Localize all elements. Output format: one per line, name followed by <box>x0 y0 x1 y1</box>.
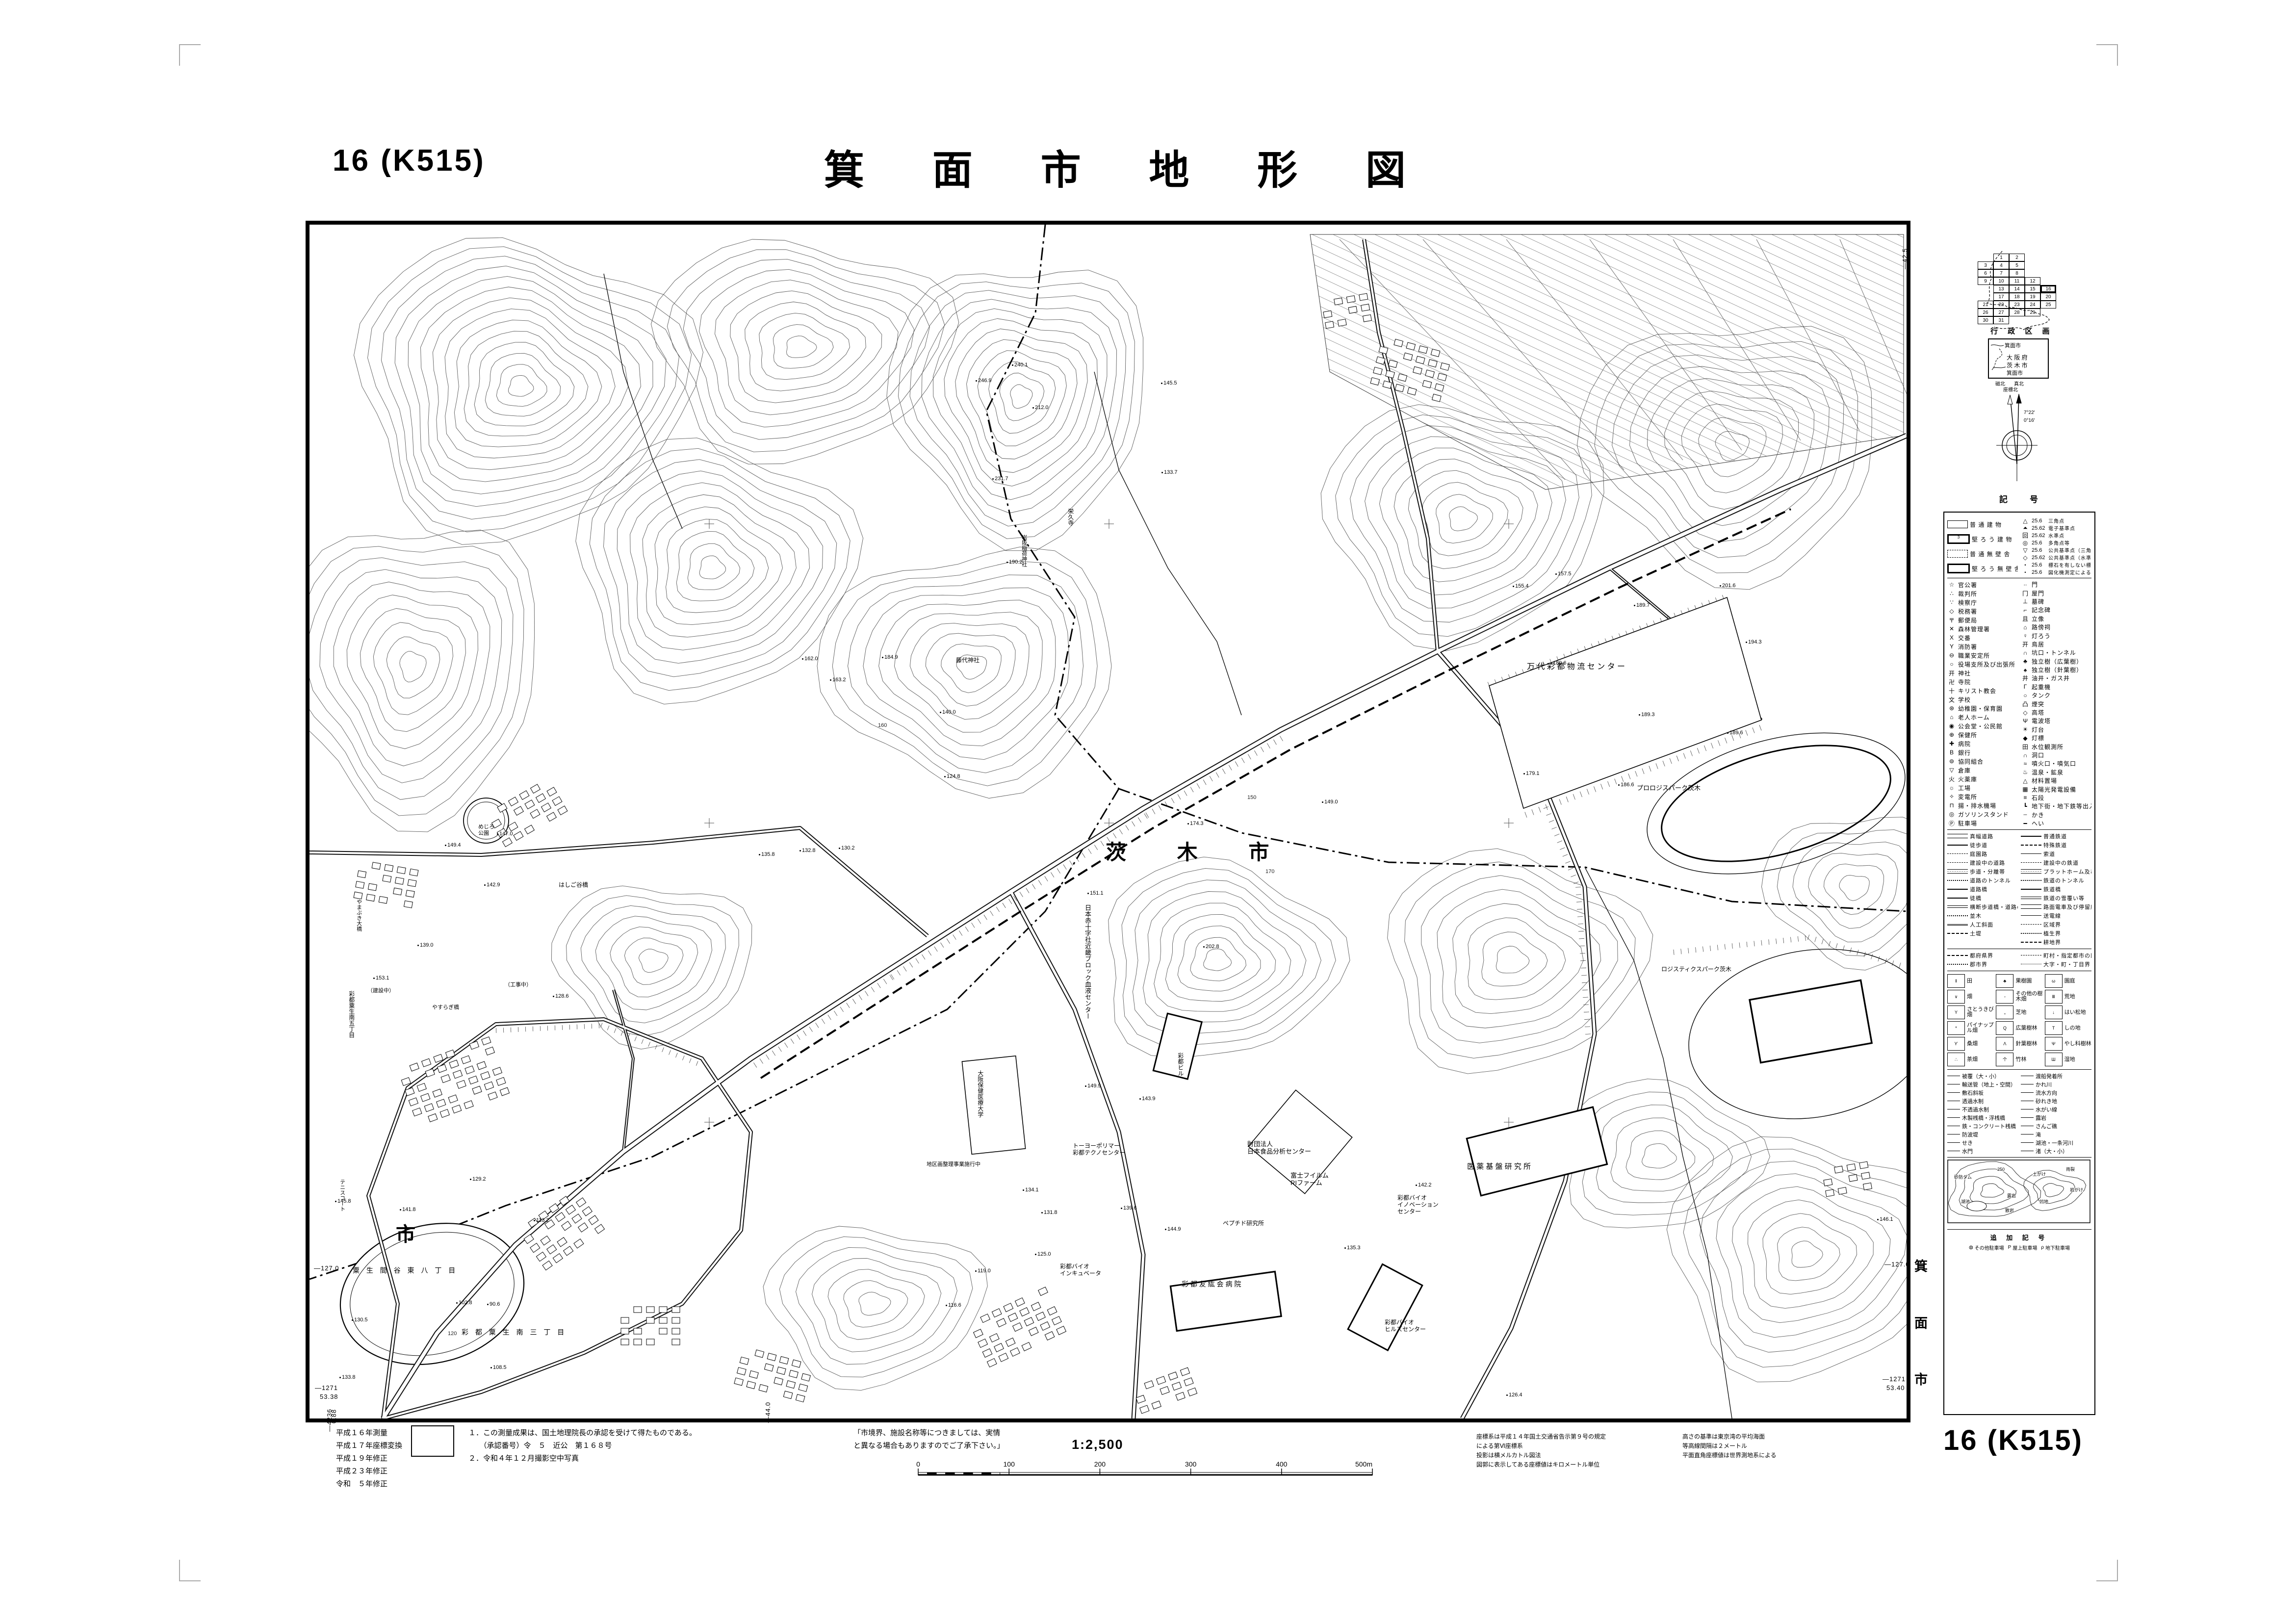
legend-water-row: 渡船発着所 <box>2021 1072 2091 1080</box>
legend-rail-row: 特殊鉄道 <box>2021 841 2091 850</box>
legend-road-row: 建設中の道路 <box>1947 858 2018 867</box>
legend-water-row: 水がい線 <box>2021 1105 2091 1113</box>
spot-elevation: 139.6 <box>1121 1205 1137 1211</box>
legend-water-row: 防波堤 <box>1947 1130 2018 1138</box>
legend-water-row: さんご礁 <box>2021 1122 2091 1130</box>
legend-road-row: 庭園路 <box>1947 850 2018 858</box>
vegetation-symbol: Ψ <box>2045 1037 2063 1051</box>
vegetation-symbol: 个 <box>1996 1053 2013 1066</box>
legend-rail-row: 鉄道のトンネル <box>2021 876 2091 885</box>
control-point-icon: ・ <box>2021 568 2030 576</box>
scale-tick-label: 200 <box>1094 1460 1106 1468</box>
place-label: 栄久寺 <box>1067 508 1074 526</box>
vegetation-symbol: * <box>1947 1021 1965 1035</box>
facility-icon: ⌐ <box>2021 607 2030 614</box>
spot-elevation: 149.4 <box>445 842 461 848</box>
terrain-sample-label: 250 <box>1997 1167 2005 1172</box>
legend-facility-row: ⊖職業安定所 <box>1947 651 2018 660</box>
index-cell-28: 28 <box>2009 309 2025 316</box>
spot-elevation: 184.9 <box>882 654 898 660</box>
water-line-icon <box>1947 1134 1960 1134</box>
line-symbol <box>2021 834 2041 839</box>
legend-additional: 追 加 記 号◍その他駐車場P屋上駐車場ρ地下駐車場 <box>1947 1230 2091 1253</box>
water-line-icon <box>2021 1134 2034 1134</box>
place-label: （工事中） <box>505 982 532 988</box>
spot-elevation: 145.8 <box>335 1198 351 1204</box>
place-label: （建設中） <box>367 988 394 994</box>
facility-icon: △ <box>2021 777 2030 784</box>
legend-water: 被覆（大・小）輸送管（地上・空間）敷石斜坂透過水制不透過水制木製桟橋・浮桟橋鉄・… <box>1947 1070 2091 1158</box>
spot-elevation: 133.8 <box>339 1374 356 1380</box>
facility-icon: ⌂ <box>2021 624 2030 631</box>
terrain-sample-label: 凹地 <box>2039 1200 2048 1204</box>
place-label: プロロジスパーク茨木 <box>1637 785 1701 792</box>
line-symbol <box>2021 887 2041 892</box>
terrain-sample-label: 土がけ <box>2033 1172 2046 1177</box>
edge-coordinate: —1271 <box>315 1384 338 1392</box>
water-line-icon <box>1947 1142 1960 1143</box>
vegetation-symbol: ∨ <box>1947 990 1965 1004</box>
spot-elevation: 202.8 <box>1203 944 1219 950</box>
additional-item: ◍その他駐車場 <box>1969 1244 2004 1251</box>
index-cell-8: 8 <box>2009 269 2025 277</box>
legend-water-row: 砂れき地 <box>2021 1097 2091 1105</box>
legend-facility-row: ◉公会堂・公民館 <box>1947 722 2018 730</box>
spot-elevation: 135.8 <box>759 851 775 857</box>
facility-icon: ≡ <box>2021 794 2030 801</box>
legend-vegetation-cell: Λ針葉樹林 <box>1996 1036 2042 1052</box>
grid-angle: 0°16′ <box>2024 418 2035 423</box>
water-line-icon <box>1947 1117 1960 1118</box>
vegetation-symbol: Ш <box>2045 1053 2063 1066</box>
legend-vegetation-cell: ↓はい松地 <box>2045 1005 2091 1020</box>
scale-label: 1:2,500 <box>1072 1437 1124 1452</box>
index-cell-23: 23 <box>2009 301 2025 309</box>
facility-icon: ∩ <box>2021 752 2030 759</box>
place-label: 大阪保健医療大学 <box>977 1070 983 1117</box>
index-cell-7: 7 <box>1993 269 2009 277</box>
spot-elevation: 179.1 <box>1523 771 1540 776</box>
place-label: 粟 生 間 谷 東 八 丁 目 <box>353 1266 458 1274</box>
crop-mark-br <box>2096 1560 2118 1581</box>
legend-boundary-row: 都府県界 <box>1947 951 2018 960</box>
water-line-icon <box>1947 1151 1960 1151</box>
contour-label: 120 <box>448 1331 457 1337</box>
facility-icon: 凸 <box>2021 700 2030 708</box>
facility-icon: Y <box>1947 643 1956 650</box>
additional-row: ◍その他駐車場P屋上駐車場ρ地下駐車場 <box>1947 1244 2091 1251</box>
datum-note-line: 平面直角座標値は世界測地系による <box>1682 1451 1777 1460</box>
facility-icon: ♠ <box>2021 667 2030 673</box>
legend: 普 通 建 物3堅 ろ う 建 物普 通 無 壁 舎堅 ろ う 無 壁 舎△25… <box>1943 512 2095 1415</box>
index-cell-31: 31 <box>1993 316 2009 324</box>
legend-water-row: かれ川 <box>2021 1080 2091 1088</box>
facility-icon: ⊚ <box>1947 758 1956 765</box>
facility-icon: ⊕ <box>1947 731 1956 738</box>
line-symbol <box>1947 904 1968 909</box>
facility-icon: ⊖ <box>1947 652 1956 659</box>
legend-facility-row: 开神社 <box>1947 669 2018 677</box>
legend-facility-row: 冂屋門 <box>2021 589 2091 597</box>
spot-elevation: 157.5 <box>1555 571 1572 577</box>
admin-title: 行 政 区 画 <box>1990 326 2054 336</box>
place-label: 市 <box>396 1223 415 1246</box>
legend-control-point-row: ◎25.6多角点等 <box>2021 539 2091 546</box>
scale-tick-label: 100 <box>1004 1460 1015 1468</box>
legend-rail-row: 送電線 <box>2021 911 2091 920</box>
water-line-icon <box>1947 1076 1960 1076</box>
vegetation-symbol: T <box>2045 1021 2063 1035</box>
vegetation-symbol: ◦ <box>1996 990 2013 1004</box>
edge-coordinate: —127.0 <box>314 1264 339 1272</box>
place-label: 彩都粟生南五丁目 <box>348 991 355 1038</box>
legend-vegetation-cell: Ⅲ荒地 <box>2045 989 2091 1005</box>
spot-elevation: 189.3 <box>1639 712 1655 718</box>
legend-vegetation-cell: Tしの地 <box>2045 1020 2091 1036</box>
legend-facility-row: Y消防署 <box>1947 642 2018 651</box>
legend-facility-row: ▽倉庫 <box>1947 766 2018 774</box>
index-cell-22: 22 <box>1993 301 2009 309</box>
legend-facility-row: Γ起重機 <box>2021 683 2091 691</box>
legend-control-point-row: ⏶25.62電子基準点 <box>2021 524 2091 532</box>
line-symbol <box>2021 931 2041 936</box>
water-line-icon <box>2021 1084 2034 1084</box>
terrain-sample-label: 露岩 <box>2007 1194 2016 1198</box>
legend-facility-row: 卍寺院 <box>1947 677 2018 686</box>
facility-icon: 开 <box>1947 669 1956 677</box>
vegetation-symbol: ω <box>2045 974 2063 988</box>
terrain-sample-label: 湖池 <box>1961 1200 1970 1204</box>
index-cell-30: 30 <box>1978 316 1993 324</box>
legend-road-row: 真幅道路 <box>1947 832 2018 841</box>
spot-elevation: 116.6 <box>946 1302 961 1308</box>
facility-icon: ∴ <box>1947 590 1956 597</box>
legend-vegetation-cell: 个竹林 <box>1996 1052 2042 1067</box>
spot-elevation: 134.1 <box>1023 1187 1039 1193</box>
legend-rail-row: 耕地界 <box>2021 938 2091 947</box>
vegetation-symbol: ↓ <box>2045 1005 2063 1019</box>
legend-facility-row: ✧変電所 <box>1947 792 2018 801</box>
spot-elevation: 131.8 <box>1041 1210 1058 1215</box>
spot-elevation: 130.5 <box>352 1317 368 1323</box>
facility-icon: ○ <box>2021 692 2030 699</box>
index-cell-25: 25 <box>2040 301 2056 309</box>
legend-vegetation-cell: ω園庭 <box>2045 973 2091 989</box>
spot-elevation: 147.0 <box>497 831 513 837</box>
legend-facility-row: ☼工場 <box>1947 783 2018 792</box>
index-cell-6: 6 <box>1978 269 1993 277</box>
line-symbol <box>2021 843 2041 848</box>
facility-icon: ✕ <box>1947 625 1956 632</box>
spot-elevation: 102.8 <box>456 1300 472 1306</box>
legend-water-row: 輸送管（地上・空間） <box>1947 1080 2018 1088</box>
legend-facility-row: ○タンク <box>2021 691 2091 699</box>
legend-rail-row: 鉄道の雪覆い等 <box>2021 894 2091 902</box>
legend-facility-row: Ⓟ駐車場 <box>1947 819 2018 827</box>
legend-boundary-row: 郡市界 <box>1947 960 2018 969</box>
place-label: 彩都バイオヒルズセンター <box>1385 1319 1426 1333</box>
line-symbol <box>2021 962 2041 967</box>
legend-water-row: 木製桟橋・浮桟橋 <box>1947 1113 2018 1122</box>
legend-rail-row: 区域界 <box>2021 920 2091 929</box>
legend-road-row: 道路橋 <box>1947 885 2018 894</box>
control-point-icon: ・ <box>2021 561 2030 568</box>
facility-icon: ┄ <box>2021 811 2030 818</box>
facility-icon: ⊓ <box>1947 802 1956 809</box>
legend-building-row: 普 通 無 壁 舎 <box>1947 546 2018 561</box>
spot-elevation: 124.8 <box>944 773 960 779</box>
approval-note-line: ２．令和４年１２月撮影空中写真 <box>468 1453 579 1463</box>
legend-control-point-row: ・25.6図化機測定による標高点 <box>2021 568 2091 576</box>
side-city-char: 市 <box>1914 1369 1928 1388</box>
index-cell-20: 20 <box>2040 293 2056 301</box>
legend-facility-row: B銀行 <box>1947 748 2018 757</box>
scale-tick-label: 500m <box>1355 1460 1372 1468</box>
legend-water-row: 敷石斜坂 <box>1947 1088 2018 1097</box>
index-cell-17: 17 <box>1993 293 2009 301</box>
legend-facility-row: ◎ガソリンスタンド <box>1947 810 2018 819</box>
line-symbol <box>1947 913 1968 918</box>
scanned-map-sheet: { "page":{ "sheet_number":"16 (K515)", "… <box>0 0 2296 1624</box>
legend-facility-row: 〒郵便局 <box>1947 616 2018 624</box>
legend-facility-row: ◆灯標 <box>2021 734 2091 742</box>
legend-facility-row: ∴裁判所 <box>1947 589 2018 598</box>
legend-facility-row: ◇高塔 <box>2021 708 2091 717</box>
legend-vegetation-cell: Ш湿地 <box>2045 1052 2091 1067</box>
facility-icon: 十 <box>1947 687 1956 695</box>
legend-vegetation-cell: Ψやし科樹林 <box>2045 1036 2091 1052</box>
legend-facility-row: ∩洞口 <box>2021 751 2091 759</box>
facility-icon: Γ <box>2021 683 2030 690</box>
facility-icon: ☆ <box>1947 581 1956 588</box>
legend-water-row: 不透過水制 <box>1947 1105 2018 1113</box>
place-label: 彩都バイオインキュベータ <box>1060 1263 1101 1277</box>
building-symbol <box>1947 564 1970 573</box>
legend-building-row: 普 通 建 物 <box>1947 517 2018 532</box>
legend-rail-row: 路面電車及び停留所 <box>2021 902 2091 911</box>
legend-facility-row: ∙∙門 <box>2021 580 2091 589</box>
place-label: やまぶき大橋 <box>356 899 362 931</box>
spot-elevation: 194.3 <box>1746 639 1762 645</box>
facility-icon: ⌂ <box>1947 714 1956 721</box>
crop-mark-tl <box>179 44 201 66</box>
parking-icon: ◍ <box>1969 1245 1973 1250</box>
admin-pref: 大 阪 府 <box>2007 353 2028 361</box>
facility-icon: ≈ <box>2021 760 2030 767</box>
spot-elevation: 151.1 <box>1087 890 1104 896</box>
coordinate-note-line: による第Ⅵ座標系 <box>1476 1442 1523 1451</box>
legend-rail-row: 索道 <box>2021 850 2091 858</box>
crop-mark-bl <box>179 1560 201 1581</box>
control-point-icon: ◇ <box>2021 554 2030 561</box>
legend-road-row: 徒橋 <box>1947 894 2018 902</box>
terrain-sample-label: 砂防ダム <box>1954 1175 1972 1180</box>
spot-elevation: 146.1 <box>1877 1216 1893 1222</box>
legend-boundaries: 都府県界郡市界町村・指定都市の区界大字・町・丁目界 <box>1947 949 2091 971</box>
legend-road-row: 徒歩道 <box>1947 841 2018 850</box>
spot-elevation: 163.2 <box>830 677 846 683</box>
place-label: 地区画整理事業施行中 <box>927 1161 980 1168</box>
facility-icon: ⊥ <box>2021 598 2030 605</box>
line-symbol <box>1947 860 1968 865</box>
legend-rail-row: 普通鉄道 <box>2021 832 2091 841</box>
legend-boundary-row: 大字・町・丁目界 <box>2021 960 2091 969</box>
legend-facility-row: ◇税務署 <box>1947 607 2018 616</box>
vegetation-symbol: Λ <box>1996 1037 2013 1051</box>
line-symbol <box>2021 878 2041 883</box>
legend-water-row: 被覆（大・小） <box>1947 1072 2018 1080</box>
legend-facility-row: ♀灯ろう <box>2021 631 2091 640</box>
water-line-icon <box>2021 1076 2034 1076</box>
index-cell-9: 9 <box>1978 277 1993 285</box>
legend-control-point-row: △25.6三角点 <box>2021 517 2091 524</box>
place-label: 茨 木 市 <box>1106 841 1291 864</box>
facility-icon: ✧ <box>1947 793 1956 800</box>
place-label: ロジスティクスパーク茨木 <box>1661 966 1731 973</box>
legend-building-row: 3堅 ろ う 建 物 <box>1947 532 2018 546</box>
spot-elevation: 155.4 <box>1513 583 1529 589</box>
facility-icon: X <box>1947 634 1956 641</box>
water-line-icon <box>2021 1101 2034 1101</box>
spot-elevation: 90.6 <box>487 1301 500 1307</box>
index-cell-21: 21 <box>1978 301 1993 309</box>
spot-elevation: 130.2 <box>839 845 855 851</box>
legend-facility-row: 凸煙突 <box>2021 699 2091 708</box>
contour-label: 160 <box>878 722 887 728</box>
legend-vegetation-cell: Q広葉樹林 <box>1996 1020 2042 1036</box>
spot-elevation: 212.0 <box>1032 405 1049 411</box>
line-symbol <box>1947 962 1968 967</box>
index-cell-2: 2 <box>2009 254 2025 261</box>
legend-facility-row: X交番 <box>1947 633 2018 642</box>
legend-vegetation: ‖田♣果樹園ω園庭∨畑◦その他の樹木畑Ⅲ荒地Yさとうきび畑„芝地↓はい松地*パイ… <box>1947 971 2091 1070</box>
admin-minoh-lower: 箕面市 <box>2007 369 2023 377</box>
legend-water-row: 鉄・コンクリート桟橋 <box>1947 1122 2018 1130</box>
facility-icon: ▽ <box>1947 767 1956 773</box>
edge-coordinate: —1271 <box>1883 1375 1906 1383</box>
facility-icon: ♣ <box>2021 658 2030 665</box>
legend-vegetation-cell: *パイナップル畑 <box>1947 1020 1994 1036</box>
index-cell-15: 15 <box>2025 285 2040 293</box>
index-cell-29: 29 <box>2025 309 2040 316</box>
legend-facility-row: 火火薬庫 <box>1947 774 2018 783</box>
line-symbol <box>2021 869 2041 874</box>
scale-tick-label: 0 <box>916 1460 920 1468</box>
legend-vegetation-cell: ϒ桑畑 <box>1947 1036 1994 1052</box>
legend-facility-row: 开鳥居 <box>2021 640 2091 648</box>
disclaimer-line: 「市境界、施設名称等につきましては、実情 <box>853 1427 1000 1438</box>
vegetation-grid: ‖田♣果樹園ω園庭∨畑◦その他の樹木畑Ⅲ荒地Yさとうきび畑„芝地↓はい松地*パイ… <box>1947 973 2091 1067</box>
legend-rail-row: プラットホーム及び跨線橋 <box>2021 867 2091 876</box>
line-symbol <box>1947 931 1968 936</box>
line-symbol <box>1947 834 1968 839</box>
place-label: はしご谷橋 <box>559 882 588 889</box>
legend-facilities: ☆官公署∴裁判所∵検察庁◇税務署〒郵便局✕森林管理署X交番Y消防署⊖職業安定所○… <box>1947 578 2091 830</box>
side-city-char: 箕 <box>1914 1256 1928 1275</box>
legend-facility-row: 十キリスト教会 <box>1947 686 2018 695</box>
legend-facility-row: ⌐記念碑 <box>2021 606 2091 614</box>
legend-facility-row: ⊥墓碑 <box>2021 597 2091 606</box>
edge-coordinate: 53.40 <box>1886 1384 1905 1392</box>
disclaimer-line: と異なる場合もありますのでご了承下さい。」 <box>853 1440 1005 1450</box>
spot-elevation: 140.0 <box>940 709 956 715</box>
place-label: 財団法人日本食品分析センター <box>1247 1141 1311 1156</box>
water-line-icon <box>1947 1126 1960 1126</box>
facility-icon: 且 <box>2021 615 2030 623</box>
legend-control-point-row: ▽25.6公共基準点（三角点） <box>2021 546 2091 554</box>
facility-icon: 文 <box>1947 696 1956 704</box>
control-point-icon: △ <box>2021 517 2030 524</box>
legend-facility-row: ⊚協同組合 <box>1947 757 2018 766</box>
parking-icon: P <box>2008 1245 2012 1250</box>
facility-icon: ☼ <box>1947 784 1956 791</box>
legend-facility-row: ∩坑口・トンネル <box>2021 648 2091 657</box>
building-symbol <box>1947 550 1968 558</box>
legend-facility-row: ✕森林管理署 <box>1947 624 2018 633</box>
place-label: 万 代 彩 都 物 流 セ ン タ ー <box>1527 663 1625 671</box>
legend-water-row: 湖池・一条河川 <box>2021 1138 2091 1147</box>
facility-icon: ◎ <box>1947 811 1956 818</box>
water-line-icon <box>2021 1092 2034 1093</box>
facility-icon: 卍 <box>1947 678 1956 686</box>
legend-road-row: 歩道・分離帯 <box>1947 867 2018 876</box>
legend-vegetation-cell: ∨畑 <box>1947 989 1994 1005</box>
coordinate-note-line: 座標系は平成１４年国土交通省告示第９号の規定 <box>1476 1432 1606 1442</box>
place-label: 医 薬 基 盤 研 究 所 <box>1467 1162 1531 1171</box>
crop-mark-tr <box>2096 44 2118 66</box>
line-symbol <box>2021 922 2041 927</box>
spot-elevation: 129.2 <box>470 1176 486 1182</box>
scale-tick-label: 400 <box>1276 1460 1288 1468</box>
place-label: トーヨーポリマー彩都テクノセンター <box>1073 1143 1125 1157</box>
legend-facility-row: 文学校 <box>1947 695 2018 704</box>
line-symbol <box>1947 953 1968 958</box>
spot-elevation: 142.9 <box>484 882 500 888</box>
coordinate-note-line: 投影は横メルカトル図法 <box>1476 1451 1541 1460</box>
facility-icon: 开 <box>2021 640 2030 648</box>
legend-facility-row: 井油井・ガス井 <box>2021 674 2091 682</box>
facility-icon: ♨ <box>2021 769 2030 775</box>
spot-elevation: 128.6 <box>553 993 569 999</box>
building-symbol <box>1947 520 1968 528</box>
legend-facility-row: ━へい <box>2021 819 2091 827</box>
sheet-number: 16 (K515) <box>333 143 486 178</box>
facility-icon: ✚ <box>1947 740 1956 747</box>
legend-vegetation-cell: ♣果樹園 <box>1996 973 2042 989</box>
spot-elevation: 153.1 <box>373 975 389 981</box>
facility-icon: ♀ <box>2021 632 2030 639</box>
parking-icon: ρ <box>2041 1245 2044 1250</box>
legend-control-point-row: ・25.6標石を有しない標高点 <box>2021 561 2091 568</box>
survey-history-line: 平成１９年修正 <box>336 1453 387 1463</box>
facility-icon: ⊛ <box>1947 705 1956 712</box>
spot-elevation: 174.3 <box>1187 821 1204 826</box>
line-symbol <box>1947 851 1968 856</box>
line-symbol <box>1947 887 1968 892</box>
legend-facility-row: ♨温泉・鉱泉 <box>2021 768 2091 776</box>
index-cell-4: 4 <box>1993 261 2009 269</box>
additional-title: 追 加 記 号 <box>1947 1233 2091 1242</box>
water-line-icon <box>1947 1092 1960 1093</box>
legend-facility-row: ∵検察庁 <box>1947 598 2018 607</box>
water-line-icon <box>1947 1109 1960 1109</box>
vegetation-symbol: Q <box>1996 1021 2013 1035</box>
control-point-icon: 回 <box>2021 532 2030 539</box>
spot-elevation: 141.8 <box>400 1207 416 1212</box>
legend-facility-row: 且立像 <box>2021 615 2091 623</box>
facility-icon: 井 <box>2021 674 2030 682</box>
survey-empty-box <box>411 1425 454 1457</box>
